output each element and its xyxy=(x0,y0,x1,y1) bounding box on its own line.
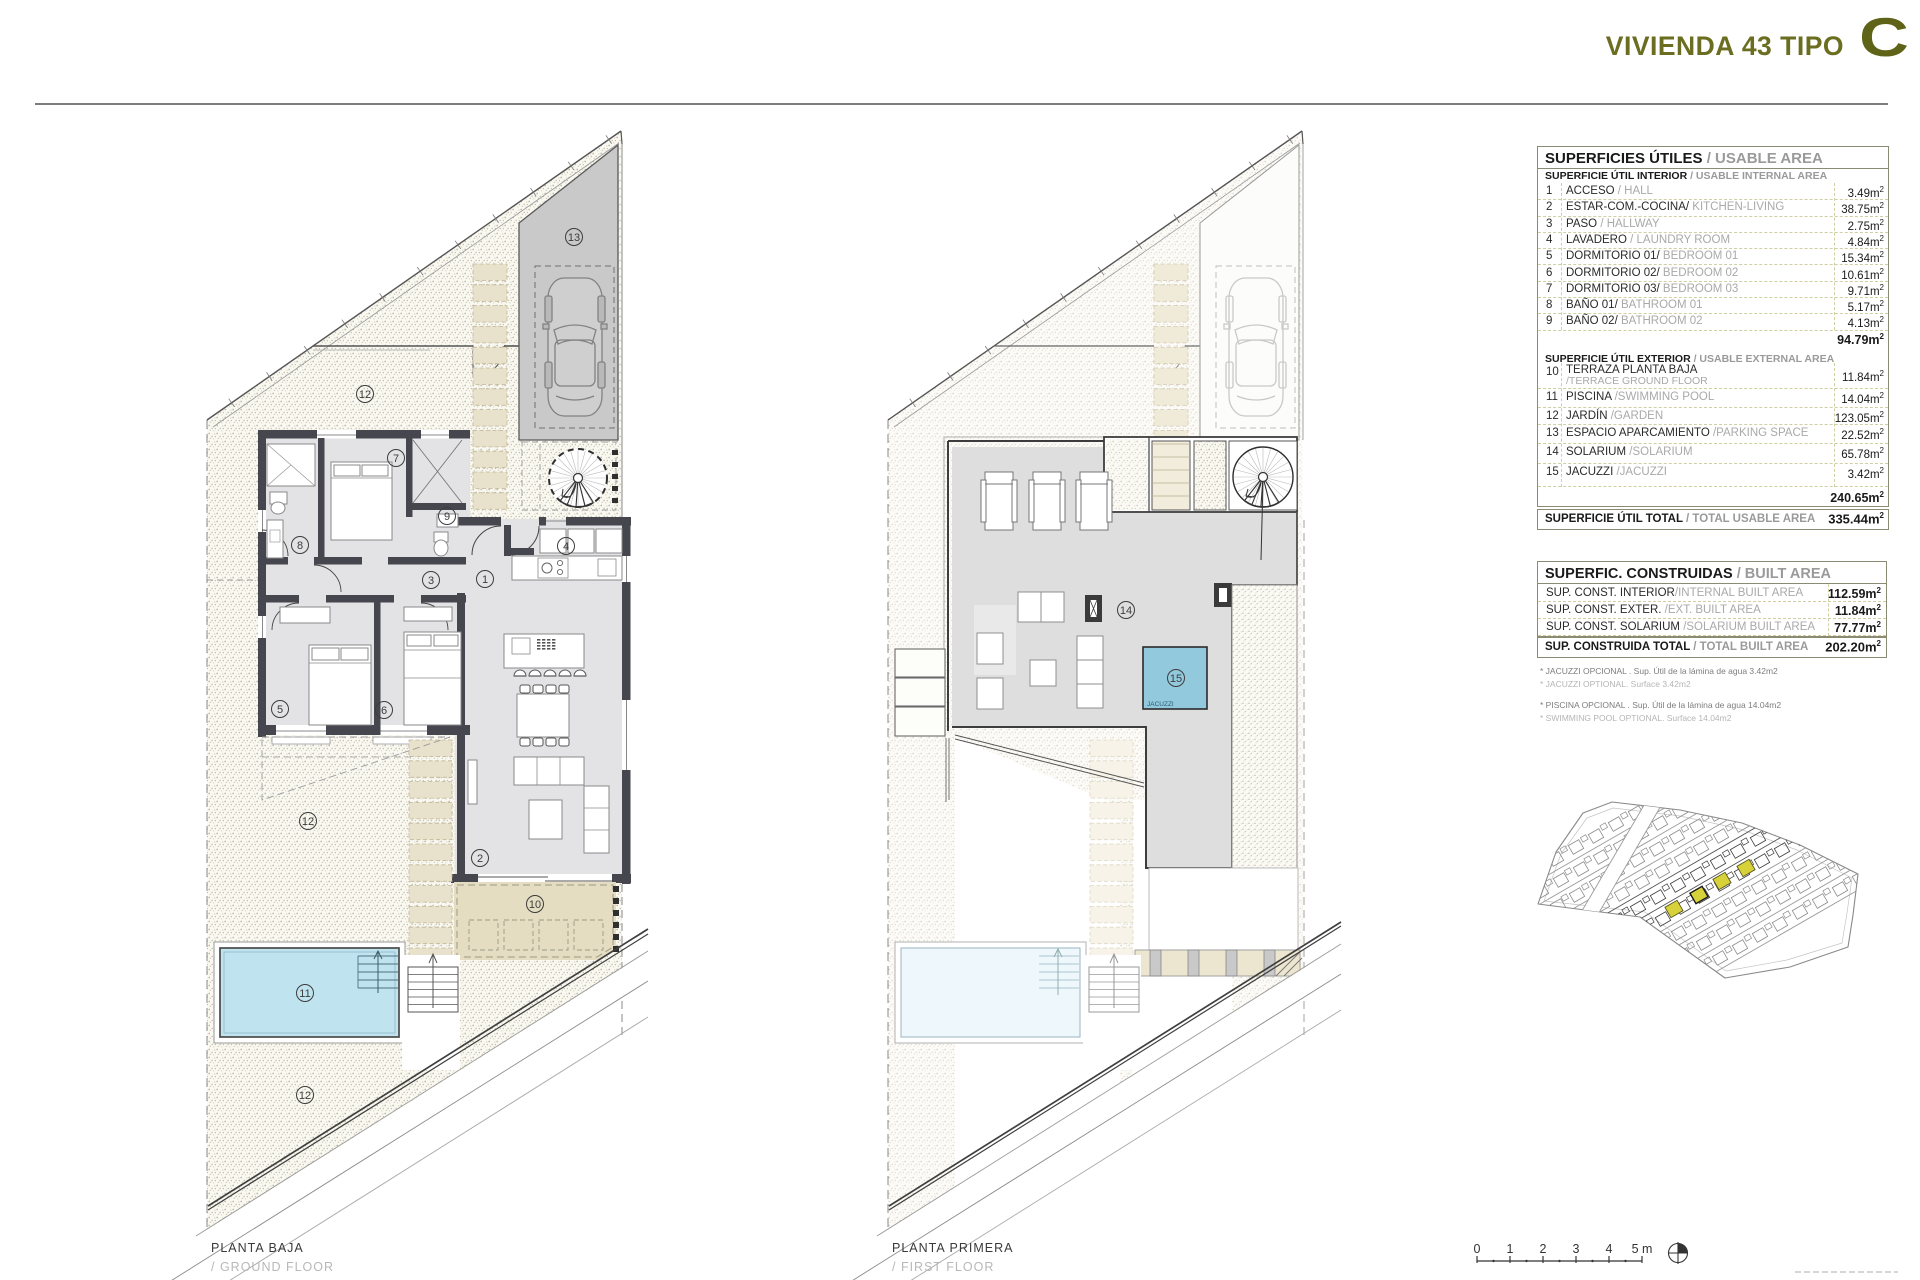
svg-text:12: 12 xyxy=(359,389,371,401)
svg-text:2: 2 xyxy=(477,853,483,865)
svg-text:4: 4 xyxy=(1606,1242,1613,1256)
svg-text:5 m: 5 m xyxy=(1632,1242,1653,1256)
svg-text:4: 4 xyxy=(563,541,569,553)
svg-text:9: 9 xyxy=(444,511,450,523)
svg-text:10: 10 xyxy=(529,899,541,911)
svg-text:6: 6 xyxy=(381,705,387,717)
svg-text:2: 2 xyxy=(1540,1242,1547,1256)
svg-text:5: 5 xyxy=(277,704,283,716)
svg-text:3: 3 xyxy=(428,575,434,587)
svg-text:1: 1 xyxy=(1507,1242,1514,1256)
svg-text:/ GROUND FLOOR: / GROUND FLOOR xyxy=(211,1260,334,1274)
svg-text:13: 13 xyxy=(568,232,580,244)
svg-text:PLANTA BAJA: PLANTA BAJA xyxy=(211,1241,304,1255)
svg-text:15: 15 xyxy=(1170,673,1182,685)
svg-text:11: 11 xyxy=(299,988,310,1000)
svg-text:12: 12 xyxy=(299,1090,311,1102)
svg-text:JACUZZI: JACUZZI xyxy=(1147,701,1174,708)
svg-text:PLANTA PRIMERA: PLANTA PRIMERA xyxy=(892,1241,1013,1255)
svg-text:/ FIRST FLOOR: / FIRST FLOOR xyxy=(892,1260,994,1274)
svg-text:3: 3 xyxy=(1573,1242,1580,1256)
svg-text:12: 12 xyxy=(302,816,314,828)
svg-text:14: 14 xyxy=(1120,605,1132,617)
svg-text:7: 7 xyxy=(393,453,399,465)
svg-text:1: 1 xyxy=(482,574,488,586)
svg-text:0: 0 xyxy=(1474,1242,1481,1256)
svg-text:8: 8 xyxy=(297,540,303,552)
